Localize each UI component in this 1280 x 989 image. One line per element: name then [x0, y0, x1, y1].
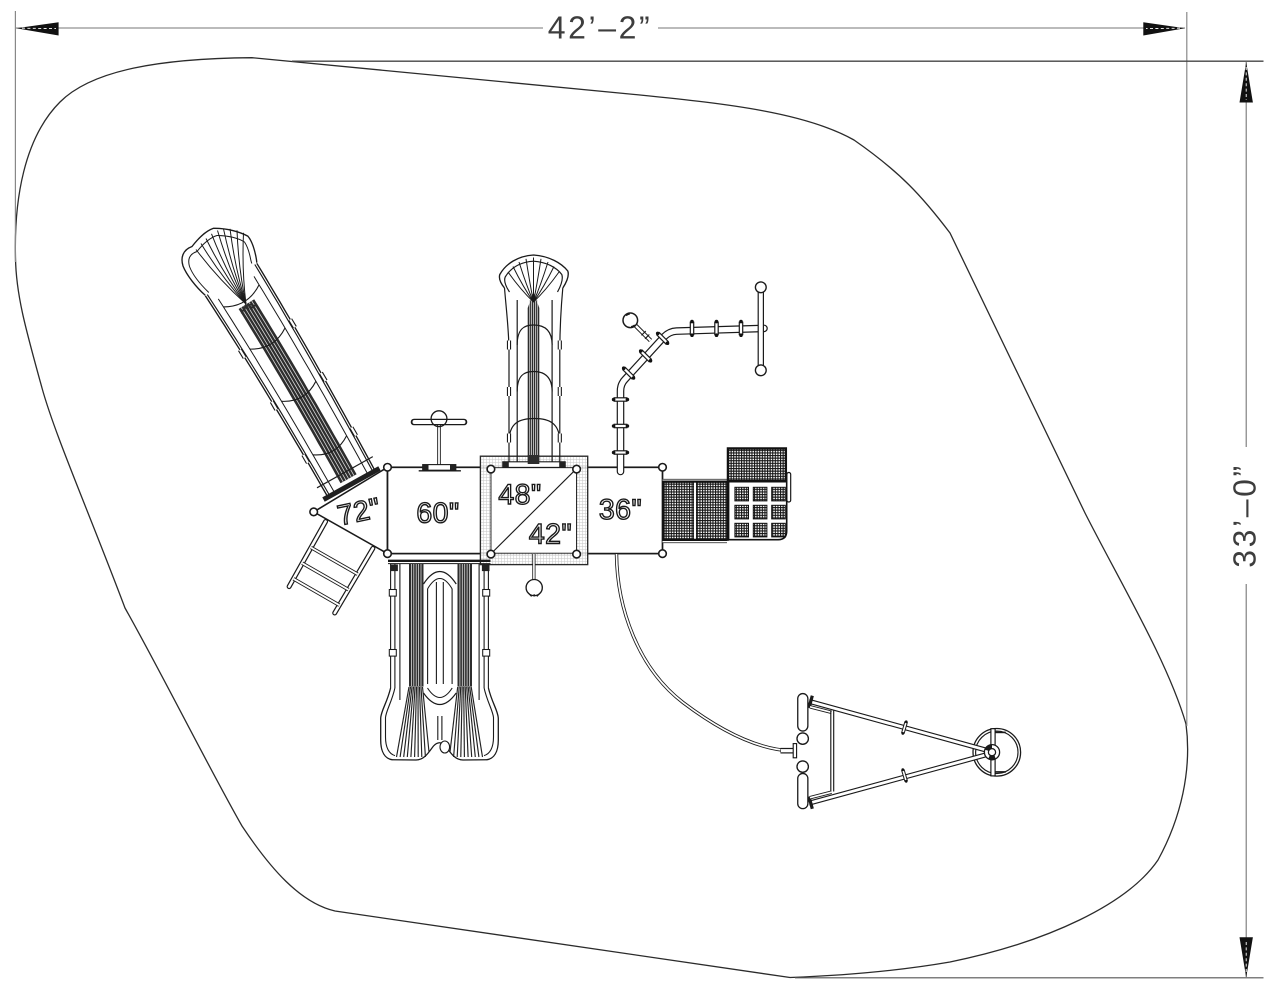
svg-text:60": 60" [416, 498, 459, 530]
svg-text:36": 36" [599, 494, 642, 526]
svg-text:42’–2”: 42’–2” [548, 10, 653, 46]
svg-text:42": 42" [529, 519, 572, 551]
svg-text:48": 48" [498, 479, 541, 511]
svg-text:33’–0”: 33’–0” [1227, 463, 1263, 568]
